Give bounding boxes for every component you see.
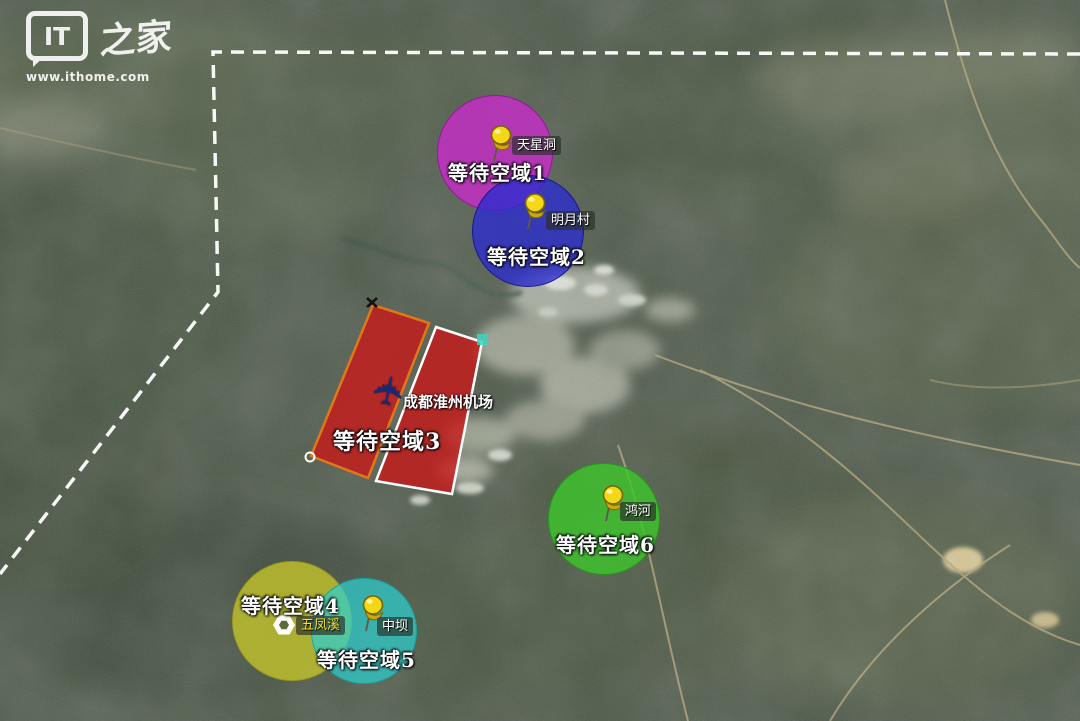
placemark-label-wufengxi[interactable]: 五凤溪 [296, 616, 345, 635]
airspace-boundary-dashed-line [0, 52, 1080, 574]
satellite-map[interactable]: 等待空域1 等待空域2 等待空域3 等待空域4 等待空域5 等待空域6 天星洞 … [0, 0, 1080, 721]
placemark-label-tianxingdong[interactable]: 天星洞 [512, 136, 561, 155]
zone-label-4: 等待空域4 [241, 590, 340, 619]
zone-label-6: 等待空域6 [556, 529, 655, 558]
pushpin-icon-mingyuecun[interactable] [526, 194, 546, 229]
zone-label-1: 等待空域1 [448, 157, 547, 186]
ithome-logo-cn: 之家 [99, 7, 173, 64]
placemark-label-honghe[interactable]: 鸿河 [620, 502, 656, 521]
zone-label-2: 等待空域2 [487, 241, 586, 270]
ithome-logo-icon: IT [26, 11, 88, 61]
placemark-label-mingyuecun[interactable]: 明月村 [546, 211, 595, 230]
ithome-logo-text: IT [44, 22, 70, 51]
airport-name-label[interactable]: 成都淮州机场 [403, 391, 493, 412]
map-annotations [0, 0, 1080, 721]
placemark-label-zhongba[interactable]: 中坝 [377, 617, 413, 636]
vertex-marker-teal-square[interactable] [477, 334, 488, 345]
ithome-url: www.ithome.com [26, 70, 172, 84]
ithome-watermark: IT 之家 www.ithome.com [26, 10, 172, 84]
zone-label-3: 等待空域3 [333, 424, 441, 456]
pushpin-icon-tianxingdong[interactable] [492, 126, 512, 161]
zone-label-5: 等待空域5 [317, 644, 416, 673]
